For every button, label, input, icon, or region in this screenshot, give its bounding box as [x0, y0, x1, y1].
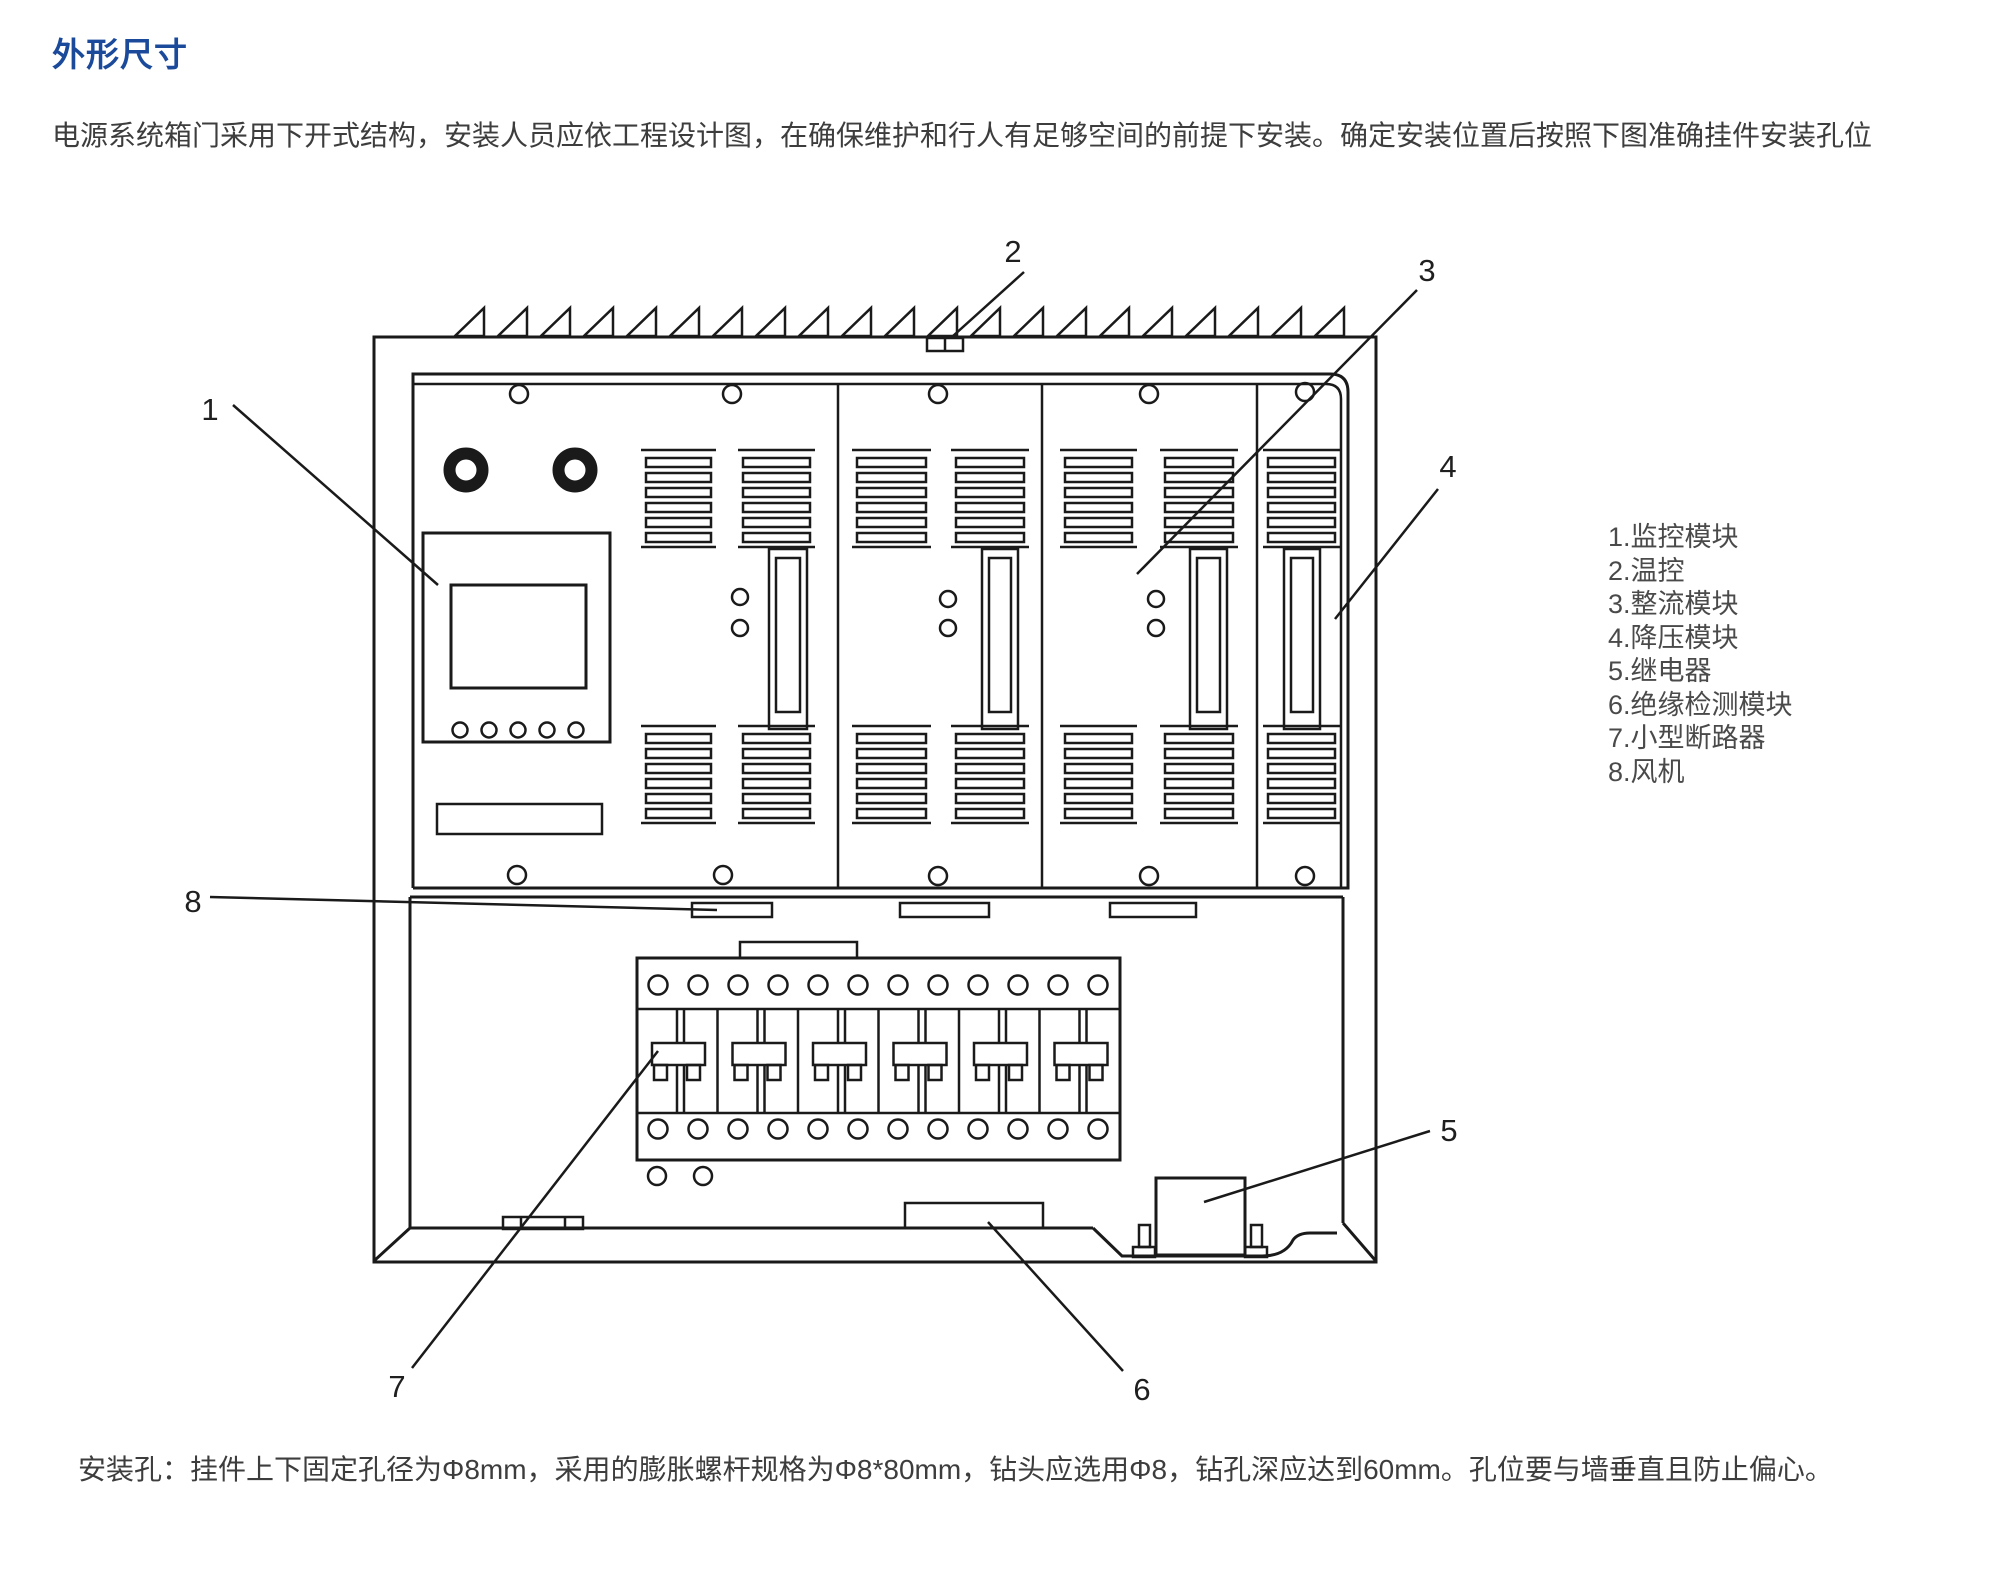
- fin: [799, 308, 828, 336]
- temperature-control: [927, 338, 963, 351]
- vent-slat: [1065, 734, 1132, 743]
- callout-4: 4: [1439, 449, 1456, 484]
- callout-1: 1: [201, 392, 218, 427]
- vent-slat: [1268, 458, 1335, 467]
- vent-slat: [1165, 809, 1233, 818]
- screw-hole: [723, 385, 741, 403]
- module-handle-inner: [989, 558, 1011, 712]
- vent-slat: [1165, 518, 1233, 527]
- vent-slat: [1165, 794, 1233, 803]
- vent-slat: [857, 809, 926, 818]
- legend-item-6: 6.绝缘检测模块: [1608, 689, 1793, 723]
- legend-item-7: 7.小型断路器: [1608, 722, 1793, 756]
- terminal-hole: [969, 976, 988, 995]
- fin: [1057, 308, 1086, 336]
- vent-slat: [857, 473, 926, 482]
- fin: [1315, 308, 1344, 336]
- vent-slat: [956, 809, 1024, 818]
- vent-slat: [956, 533, 1024, 542]
- fin: [713, 308, 742, 336]
- fin: [928, 308, 957, 336]
- fin: [584, 308, 613, 336]
- vent-slat: [646, 809, 711, 818]
- callout-6: 6: [1133, 1372, 1150, 1407]
- vent-slat: [956, 764, 1024, 773]
- terminal-hole: [689, 1120, 708, 1139]
- vent-slat: [857, 794, 926, 803]
- vent-slat: [857, 503, 926, 512]
- module-handle: [1284, 549, 1320, 729]
- monitor-screen: [451, 585, 586, 688]
- terminal-hole: [809, 1120, 828, 1139]
- vent-slat: [1268, 794, 1335, 803]
- vent-slat: [646, 779, 711, 788]
- callout-2: 2: [1004, 234, 1021, 269]
- connector-hole: [732, 589, 748, 605]
- vent-slat: [857, 533, 926, 542]
- vent-slat: [1065, 779, 1132, 788]
- monitoring-module: [423, 454, 610, 835]
- callout-5: 5: [1440, 1113, 1457, 1148]
- vent-slat: [646, 518, 711, 527]
- vent-slat: [1268, 533, 1335, 542]
- fin: [541, 308, 570, 336]
- vent-slat: [1268, 488, 1335, 497]
- fin: [1229, 308, 1258, 336]
- left-bevel: [375, 1228, 410, 1260]
- vent-slat: [857, 764, 926, 773]
- vent-slat: [646, 533, 711, 542]
- legend-item-3: 3.整流模块: [1608, 588, 1793, 622]
- vent-slat: [956, 794, 1024, 803]
- vent-slat: [646, 503, 711, 512]
- vent-slat: [1268, 809, 1335, 818]
- vent-slat: [1165, 488, 1233, 497]
- terminal-hole: [849, 1120, 868, 1139]
- vent-slat: [1268, 734, 1335, 743]
- breaker-top-tab: [740, 942, 857, 958]
- connector-hole: [1148, 591, 1164, 607]
- vent-slat: [743, 794, 810, 803]
- terminal-hole: [889, 1120, 908, 1139]
- terminal-hole: [849, 976, 868, 995]
- vent-slat: [956, 503, 1024, 512]
- fin: [756, 308, 785, 336]
- terminal-hole: [649, 976, 668, 995]
- vent-slat: [1065, 458, 1132, 467]
- vent-slat: [1065, 749, 1132, 758]
- vent-slat: [646, 764, 711, 773]
- breaker-toggle: [974, 1043, 1027, 1065]
- connector-hole: [940, 591, 956, 607]
- monitor-button: [511, 723, 526, 738]
- fin: [885, 308, 914, 336]
- vent-slat: [743, 488, 810, 497]
- screw-hole: [1140, 867, 1158, 885]
- vent-slat: [1065, 488, 1132, 497]
- connector-hole: [1148, 620, 1164, 636]
- screw-hole: [1296, 867, 1314, 885]
- vent-slat: [743, 749, 810, 758]
- terminal-hole: [769, 976, 788, 995]
- heat-sink-fins: [455, 308, 1344, 336]
- screw-hole: [929, 867, 947, 885]
- vent-slat: [743, 503, 810, 512]
- vent-slat: [1165, 749, 1233, 758]
- legend-item-1: 1.监控模块: [1608, 521, 1793, 555]
- callout-3: 3: [1418, 253, 1435, 288]
- component-legend: 1.监控模块 2.温控 3.整流模块 4.降压模块 5.继电器 6.绝缘检测模块…: [1608, 521, 1793, 789]
- manual-page: 外形尺寸 电源系统箱门采用下开式结构，安装人员应依工程设计图，在确保维护和行人有…: [0, 0, 2000, 1569]
- fan: [692, 903, 1196, 917]
- vent-slat: [956, 749, 1024, 758]
- terminal-hole: [1049, 976, 1068, 995]
- vent-slat: [1065, 809, 1132, 818]
- connector-hole: [940, 620, 956, 636]
- breaker-toggle: [652, 1043, 705, 1065]
- vent-slat: [646, 794, 711, 803]
- monitor-button: [482, 723, 497, 738]
- screw-hole: [510, 385, 528, 403]
- vent-slat: [743, 734, 810, 743]
- vent-slat: [743, 779, 810, 788]
- breaker-switch-units: [652, 1009, 1108, 1113]
- terminal-hole: [649, 1120, 668, 1139]
- terminal-hole: [809, 976, 828, 995]
- vent-slat: [1165, 734, 1233, 743]
- terminal-hole: [889, 976, 908, 995]
- terminal-hole: [1049, 1120, 1068, 1139]
- terminal-hole: [1009, 976, 1028, 995]
- cabinet-inner-walls: [375, 897, 1375, 1260]
- terminal-hole: [929, 1120, 948, 1139]
- legend-item-8: 8.风机: [1608, 756, 1793, 790]
- monitor-button: [453, 723, 468, 738]
- vent-slat: [956, 734, 1024, 743]
- vent-slat: [857, 518, 926, 527]
- fin: [455, 308, 484, 336]
- mini-circuit-breaker-block: [637, 942, 1120, 1185]
- vent-slat: [1065, 764, 1132, 773]
- vent-slat: [646, 749, 711, 758]
- vent-slat: [1268, 764, 1335, 773]
- fin: [971, 308, 1000, 336]
- vent-slat: [743, 458, 810, 467]
- fin: [670, 308, 699, 336]
- module-handle: [769, 549, 807, 729]
- vent-slat: [956, 779, 1024, 788]
- monitor-button: [540, 723, 555, 738]
- vent-slat: [743, 533, 810, 542]
- screw-hole: [929, 385, 947, 403]
- indicator-lamp: [450, 454, 483, 487]
- legend-item-4: 4.降压模块: [1608, 622, 1793, 656]
- vent-slat: [743, 809, 810, 818]
- callout-8: 8: [184, 884, 201, 919]
- module-handle: [982, 549, 1018, 729]
- fin: [1100, 308, 1129, 336]
- vent-slat: [743, 518, 810, 527]
- terminal-hole: [969, 1120, 988, 1139]
- insulation-detection-module: [905, 1203, 1043, 1228]
- fin: [1014, 308, 1043, 336]
- module-handle-inner: [1291, 558, 1313, 712]
- indicator-lamp: [559, 454, 592, 487]
- vent-slat: [743, 764, 810, 773]
- vent-slat: [956, 518, 1024, 527]
- fin: [1143, 308, 1172, 336]
- module-handle-inner: [1197, 558, 1220, 712]
- label-strip: [437, 804, 602, 834]
- monitor-buttons: [453, 723, 584, 738]
- vent-slat: [956, 488, 1024, 497]
- connector-hole: [732, 620, 748, 636]
- vent-slat: [646, 473, 711, 482]
- vent-slat: [1165, 764, 1233, 773]
- terminal-hole: [1009, 1120, 1028, 1139]
- fin: [842, 308, 871, 336]
- breaker-toggle: [1055, 1043, 1108, 1065]
- fin: [627, 308, 656, 336]
- terminal-hole: [929, 976, 948, 995]
- callout-leader-lines: [210, 272, 1438, 1371]
- relay: [1133, 1178, 1267, 1257]
- vent-slat: [1065, 518, 1132, 527]
- vent-slat: [646, 734, 711, 743]
- legend-item-5: 5.继电器: [1608, 655, 1793, 689]
- vent-slat: [1065, 533, 1132, 542]
- vent-slat: [857, 734, 926, 743]
- vent-slat: [1065, 794, 1132, 803]
- fin: [498, 308, 527, 336]
- vent-slat: [1268, 779, 1335, 788]
- terminal-hole: [689, 976, 708, 995]
- vent-slat: [1268, 518, 1335, 527]
- vent-slat: [1165, 473, 1233, 482]
- terminal-hole: [769, 1120, 788, 1139]
- mount-hole: [694, 1167, 712, 1185]
- terminal-hole: [1089, 1120, 1108, 1139]
- vent-slat: [1268, 473, 1335, 482]
- right-bevel: [1343, 1223, 1375, 1260]
- legend-item-2: 2.温控: [1608, 555, 1793, 589]
- screw-hole: [714, 866, 732, 884]
- screw-hole: [508, 866, 526, 884]
- vent-slat: [1065, 503, 1132, 512]
- terminal-hole: [729, 976, 748, 995]
- fin: [1186, 308, 1215, 336]
- vent-slat: [1065, 473, 1132, 482]
- terminal-hole: [1089, 976, 1108, 995]
- vent-slat: [1165, 779, 1233, 788]
- terminal-hole: [729, 1120, 748, 1139]
- callout-7: 7: [388, 1369, 405, 1404]
- vent-slat: [743, 473, 810, 482]
- monitor-button: [569, 723, 584, 738]
- vent-slat: [646, 488, 711, 497]
- vent-slat: [956, 473, 1024, 482]
- module-handle-inner: [776, 558, 800, 712]
- vent-slat: [857, 488, 926, 497]
- vent-slat: [1165, 458, 1233, 467]
- breaker-toggle: [894, 1043, 947, 1065]
- breaker-toggle: [813, 1043, 866, 1065]
- installation-note: 安装孔：挂件上下固定孔径为Φ8mm，采用的膨胀螺杆规格为Φ8*80mm，钻头应选…: [78, 1448, 1978, 1488]
- module-vents-and-handles: [641, 450, 1340, 823]
- vent-slat: [1268, 503, 1335, 512]
- vent-slat: [857, 458, 926, 467]
- vent-slat: [1268, 749, 1335, 758]
- cabinet-outline: [374, 337, 1376, 1262]
- screw-hole: [1140, 385, 1158, 403]
- vent-slat: [857, 779, 926, 788]
- fin: [1272, 308, 1301, 336]
- vent-slat: [857, 749, 926, 758]
- module-handle: [1190, 549, 1227, 729]
- breaker-toggle: [733, 1043, 786, 1065]
- mount-hole: [648, 1167, 666, 1185]
- relay-body: [1156, 1178, 1245, 1255]
- vent-slat: [956, 458, 1024, 467]
- vent-slat: [646, 458, 711, 467]
